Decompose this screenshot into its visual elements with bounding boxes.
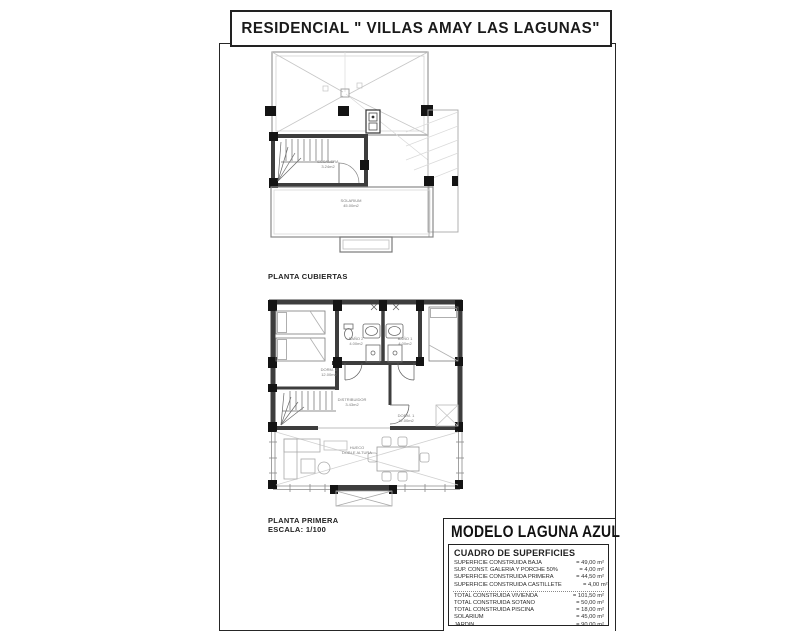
model-title: MODELO LAGUNA AZUL [451,522,620,542]
room-label-escalera: ESCALERA 3.24m2 [317,160,338,169]
table-row: TOTAL CONSTRUIDA SOTANO = 50,00 m² [449,600,608,607]
table-row: SUPERFICIE CONSTRUIDA CASTILLETE = 4,00 … [449,582,608,589]
room-label-dorm2: DORM. 2 12.00m2 [321,368,338,377]
table-row: SOLARIUM = 45,00 m² [449,614,608,621]
room-label-bano2: BAÑO 2 4.00m2 [349,337,364,346]
first-plan-caption: PLANTA PRIMERA ESCALA: 1/100 [268,516,338,534]
room-label-hueco: HUECO DOBLE ALTURA [342,446,372,455]
table-row: TOTAL CONSTRUIDA PISCINA = 18,00 m² [449,607,608,614]
surfaces-table: CUADRO DE SUPERFICIES SUPERFICIE CONSTRU… [448,544,609,626]
table-row: JARDIN = 90,00 m² [449,622,608,626]
room-label-solarium: SOLARIUM 45.00m2 [341,199,362,208]
table-row: SUPERFICIE CONSTRUIDA PRIMERA = 44,50 m² [449,574,608,581]
room-label-distribuidor: DISTRIBUIDOR 3.43m2 [338,398,367,407]
table-row: SUPERFICIE CONSTRUIDA BAJA = 49,00 m² [449,560,608,567]
first-plan-caption-title: PLANTA PRIMERA [268,516,338,525]
table-row: TOTAL CONSTRUIDA VIVIENDA = 101,50 m² [449,593,608,600]
model-title-row: MODELO LAGUNA AZUL [444,519,615,544]
roof-plan-caption: PLANTA CUBIERTAS [268,272,348,281]
roof-plan-linework [265,52,458,252]
floor-plan-drawing [0,0,800,640]
table-group-divider [453,591,604,592]
model-panel: MODELO LAGUNA AZUL CUADRO DE SUPERFICIES… [443,518,615,631]
drawing-sheet: { "sheet": { "title": "RESIDENCIAL \" VI… [0,0,800,640]
room-label-dorm1: DORM. 1 12.00m2 [398,414,415,423]
room-label-bano1: BAÑO 1 4.00m2 [398,337,413,346]
surfaces-table-header: CUADRO DE SUPERFICIES [449,545,608,560]
first-plan-scale: ESCALA: 1/100 [268,525,338,534]
table-row: SUP. CONST. GALERIA Y PORCHE 50% = 4,00 … [449,567,608,574]
